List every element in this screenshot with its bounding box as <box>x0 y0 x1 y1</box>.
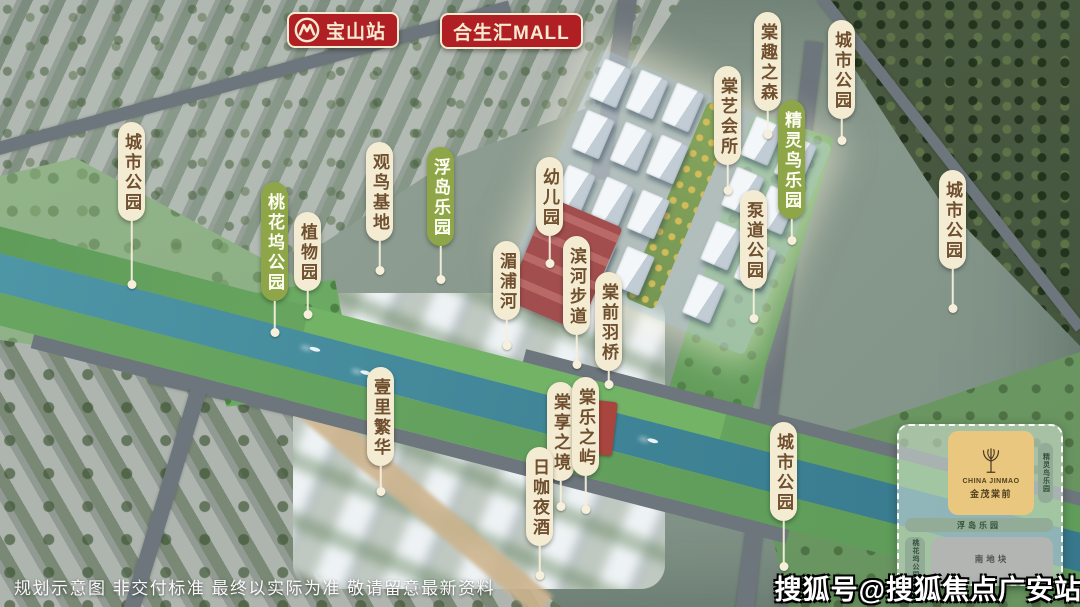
brand-name-cn: 金茂棠前 <box>970 487 1012 500</box>
label-tangle-isle: 棠乐之屿 <box>572 377 599 476</box>
jinmao-brand-block: CHINA JINMAO 金茂棠前 <box>948 431 1034 515</box>
label-tangqian-feather-bridge: 棠前羽桥 <box>595 272 622 371</box>
metro-station-label: 宝山站 <box>326 17 386 44</box>
label-city-park-left: 城市公园 <box>118 122 145 221</box>
mall-label: 合生汇MALL <box>453 18 570 45</box>
label-tangqu-forest: 棠趣之森 <box>754 12 781 111</box>
label-tangyi-clubhouse: 棠艺会所 <box>714 66 741 165</box>
label-elf-bird-park: 精灵鸟乐园 <box>778 100 805 219</box>
inset-elf-bird-park-strip: 精灵鸟乐园 <box>1038 443 1053 503</box>
label-botanical-garden: 植物园 <box>294 212 321 291</box>
label-riverside-walk: 滨河步道 <box>563 236 590 335</box>
label-pump-track-park: 泵道公园 <box>740 190 767 289</box>
label-kindergarten: 幼儿园 <box>536 157 563 236</box>
masterplan-aerial-map: 宝山站 合生汇MALL 棠趣之森 城市公园 棠艺会所 精灵鸟乐园 城市公园 观鸟… <box>0 0 1080 607</box>
boat <box>647 437 659 444</box>
metro-station-badge: 宝山站 <box>287 12 399 48</box>
mall-badge: 合生汇MALL <box>440 13 583 49</box>
masterplan-inset-map: CHINA JINMAO 金茂棠前 精灵鸟乐园 浮岛乐园 桃花坞公园 南地块 <box>897 424 1063 586</box>
disclaimer-text: 规划示意图 非交付标准 最终以实际为准 敬请留意最新资料 <box>14 574 495 599</box>
label-day-coffee-night-bar: 日咖夜酒 <box>526 447 553 546</box>
shanghai-metro-icon <box>294 17 320 43</box>
label-city-park-right: 城市公园 <box>939 170 966 269</box>
label-birdwatching-base: 观鸟基地 <box>366 142 393 241</box>
label-peach-blossom-park: 桃花坞公园 <box>261 182 288 301</box>
jinmao-tree-logo-icon <box>976 446 1006 476</box>
label-city-park-top-right: 城市公园 <box>828 20 855 119</box>
sohu-watermark: 搜狐号@搜狐焦点广安站 <box>775 568 1080 607</box>
label-meipu-river: 湄浦河 <box>493 241 520 320</box>
brand-name-en: CHINA JINMAO <box>962 478 1019 485</box>
label-yili-prosperity: 壹里繁华 <box>367 367 394 466</box>
inset-floating-island-band: 浮岛乐园 <box>905 518 1053 532</box>
label-city-park-bottom: 城市公园 <box>770 422 797 521</box>
label-floating-island-park: 浮岛乐园 <box>427 147 454 246</box>
boat <box>309 346 321 353</box>
